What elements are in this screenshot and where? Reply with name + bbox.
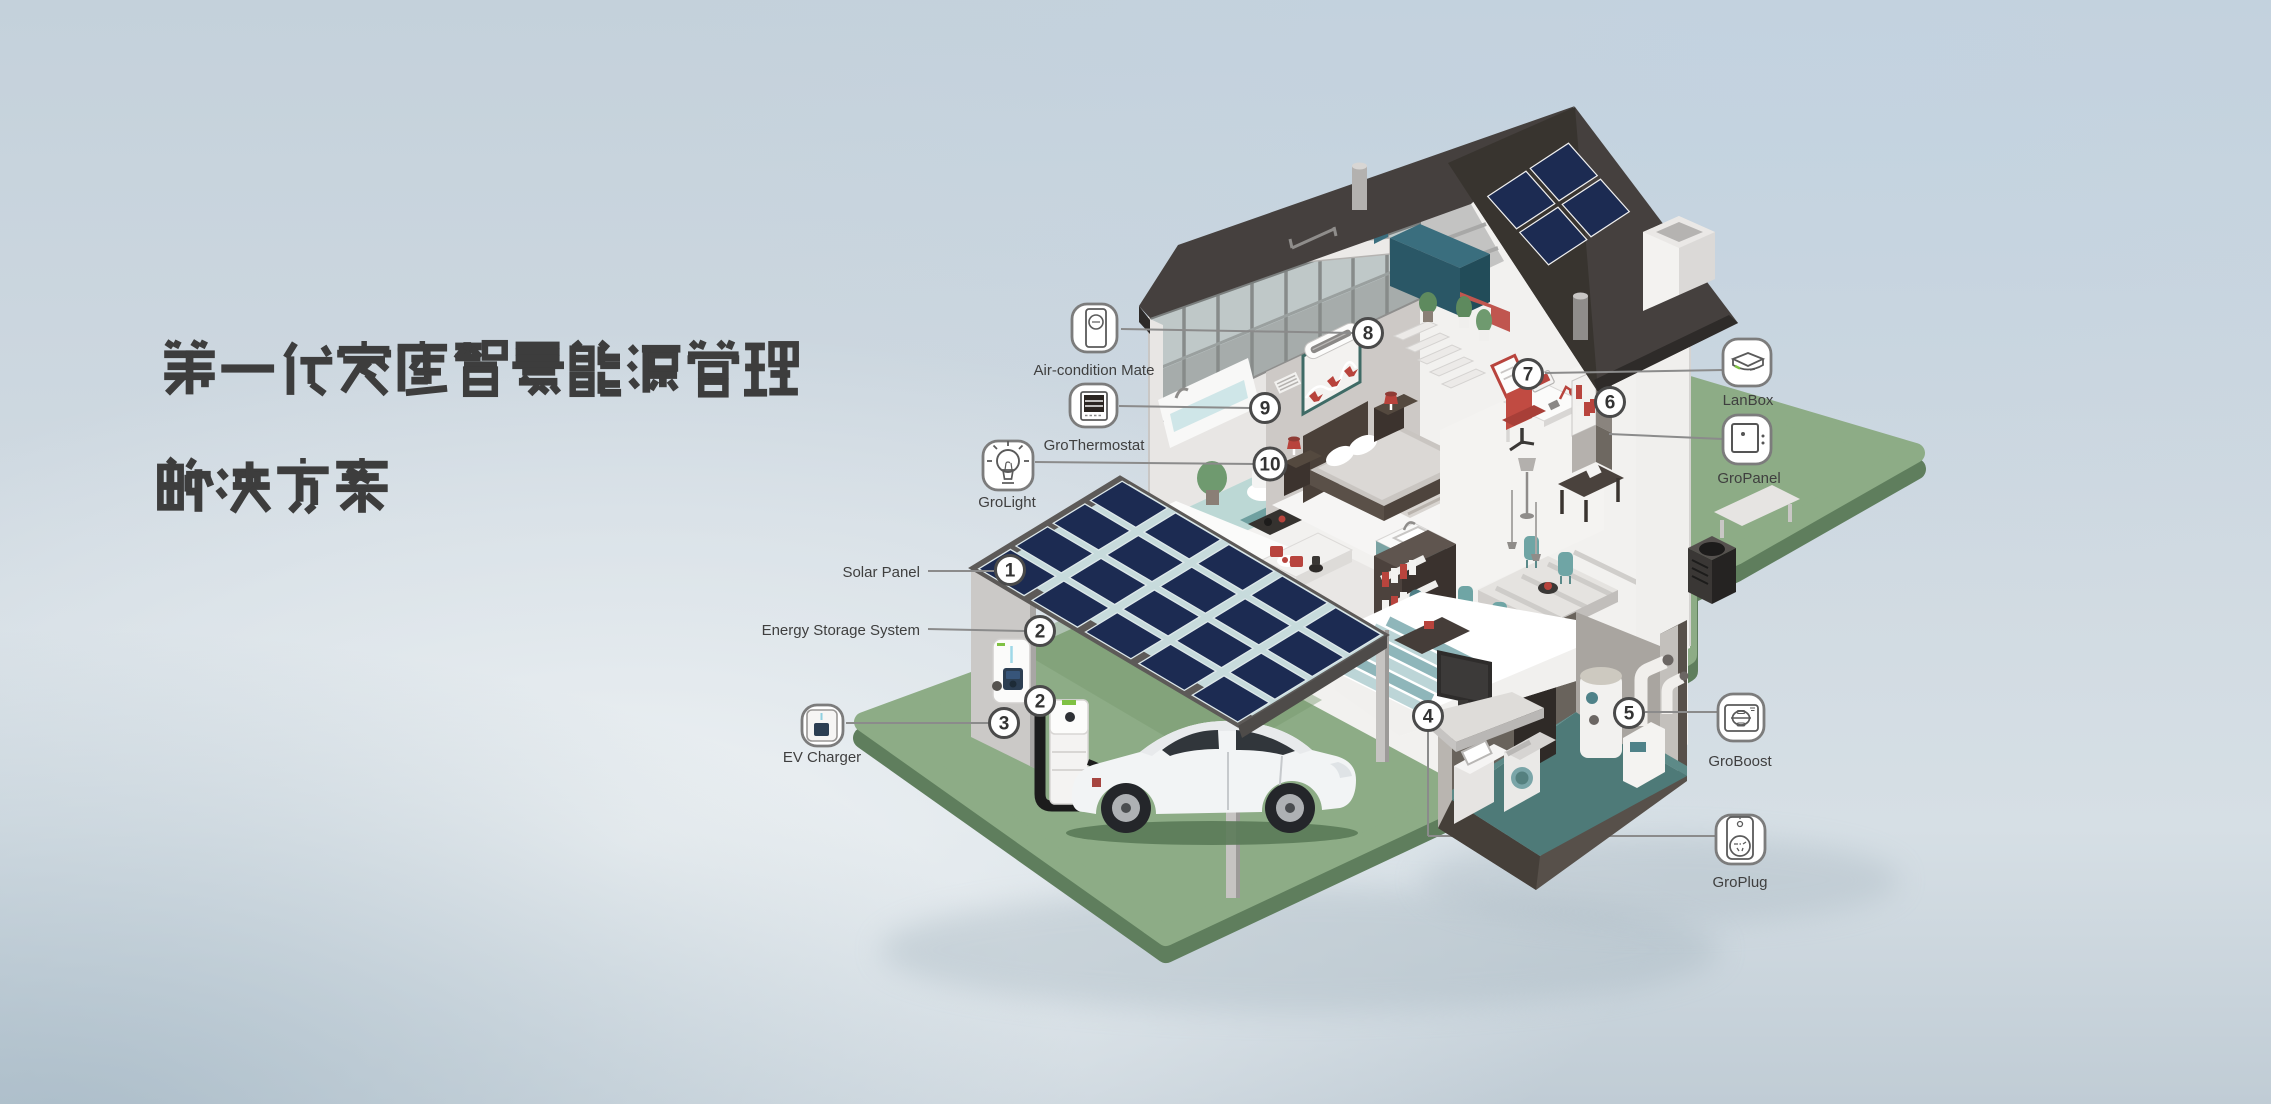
svg-text:2: 2 <box>1035 622 1046 643</box>
svg-text:8: 8 <box>1363 324 1374 345</box>
svg-text:6: 6 <box>1605 393 1616 414</box>
svg-text:Air-condition Mate: Air-condition Mate <box>1034 362 1155 379</box>
svg-text:Energy Storage System: Energy Storage System <box>762 622 920 639</box>
svg-text:7: 7 <box>1523 365 1534 386</box>
svg-text:Solar Panel: Solar Panel <box>842 564 920 581</box>
svg-text:GroPlug: GroPlug <box>1712 874 1767 891</box>
svg-text:LanBox: LanBox <box>1723 392 1774 409</box>
svg-text:GroBoost: GroBoost <box>1708 753 1772 770</box>
svg-text:GroThermostat: GroThermostat <box>1044 437 1146 454</box>
svg-text:2: 2 <box>1035 692 1046 713</box>
svg-text:1: 1 <box>1005 561 1016 582</box>
svg-text:4: 4 <box>1423 707 1434 728</box>
svg-text:9: 9 <box>1260 399 1271 420</box>
svg-text:EV Charger: EV Charger <box>783 749 861 766</box>
svg-text:GroLight: GroLight <box>978 494 1036 511</box>
svg-text:3: 3 <box>999 714 1010 735</box>
svg-text:5: 5 <box>1624 704 1635 725</box>
svg-text:GroPanel: GroPanel <box>1717 470 1780 487</box>
svg-text:10: 10 <box>1259 455 1280 476</box>
